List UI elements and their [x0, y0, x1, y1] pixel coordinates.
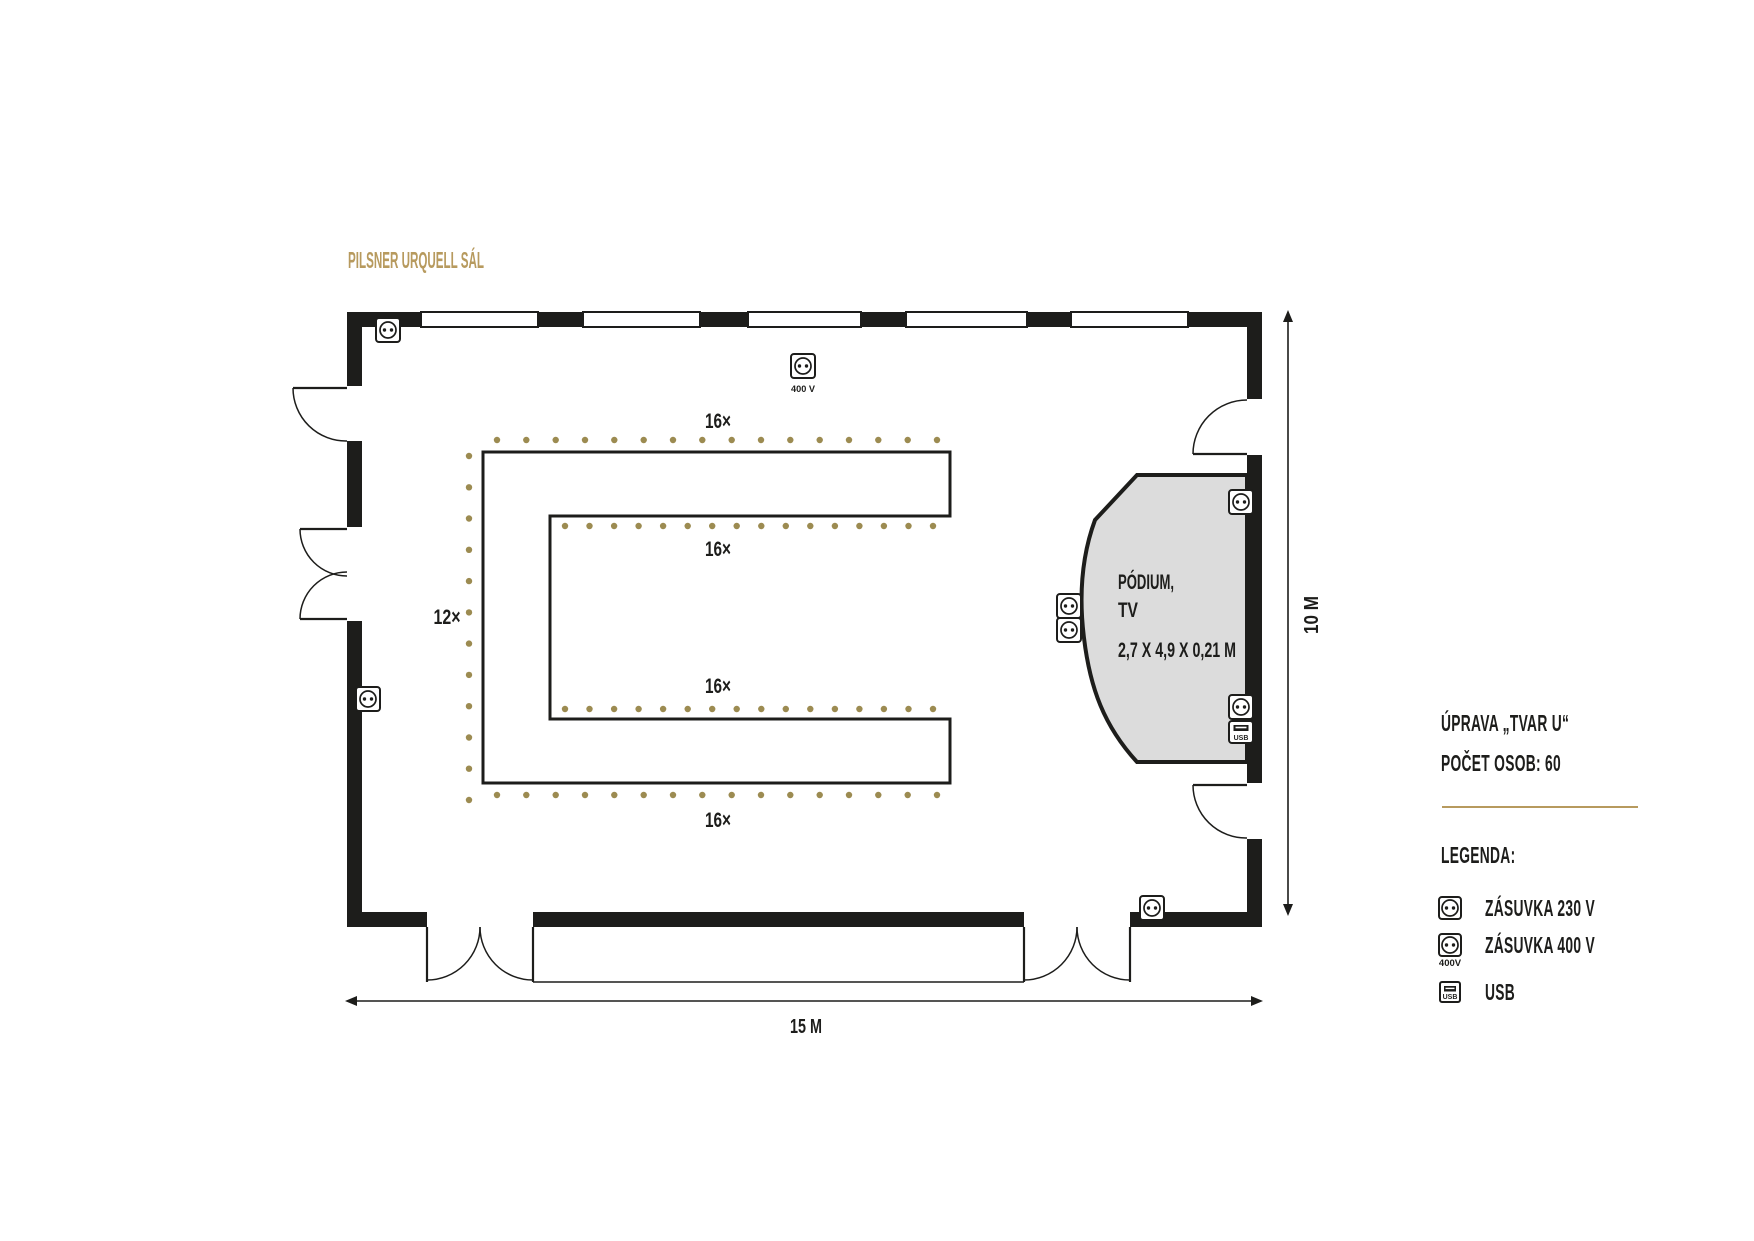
chair-dot-inner-bottom [807, 706, 813, 712]
chair-dot-outer-left [466, 734, 472, 740]
legend-label-230v: ZÁSUVKA 230 V [1485, 895, 1595, 921]
socket-400v-caption: 400 V [791, 384, 816, 395]
chair-dot-inner-top [832, 523, 838, 529]
socket-400v-icon: 400 V [791, 354, 816, 395]
socket-230v-icon [1057, 594, 1081, 618]
chair-dot-outer-left [466, 797, 472, 803]
chair-dot-outer-top [787, 437, 793, 443]
chair-dot-outer-top [905, 437, 911, 443]
legend-heading-text: LEGENDA: [1441, 842, 1515, 869]
chair-dot-inner-bottom [783, 706, 789, 712]
chair-dot-inner-bottom [734, 706, 740, 712]
chair-dot-inner-top [930, 523, 936, 529]
chair-dot-inner-bottom [660, 706, 666, 712]
seat-count-left: 12× [434, 606, 461, 629]
podium-size-label: 2,7 X 4,9 X 0,21 M [1118, 639, 1236, 662]
legend-item-usb: USB USB [1437, 979, 1535, 1009]
dimension-height: 10 M [1283, 310, 1323, 916]
chair-dot-inner-top [856, 523, 862, 529]
chair-dot-inner-top [586, 523, 592, 529]
door-bottom-left-double [427, 911, 533, 982]
chair-dot-inner-top [905, 523, 911, 529]
seat-count-inner-top: 16× [705, 538, 731, 561]
legend-icon-caption-400v: 400V [1439, 958, 1462, 969]
chair-dot-inner-bottom [562, 706, 568, 712]
seat-count-inner-bottom: 16× [705, 675, 731, 698]
chair-dot-outer-top [553, 437, 559, 443]
chair-dot-inner-bottom [635, 706, 641, 712]
chair-dot-outer-top [611, 437, 617, 443]
dimension-width-label: 15 M [790, 1016, 822, 1038]
chair-dot-outer-left [466, 703, 472, 709]
chair-dot-outer-bottom [670, 792, 676, 798]
chair-dot-inner-bottom [905, 706, 911, 712]
floorplan-page: PILSNER URQUELL SÁL [0, 0, 1754, 1241]
legend-heading: LEGENDA: [1441, 842, 1565, 869]
chair-dot-outer-left [466, 609, 472, 615]
chair-dot-outer-bottom [846, 792, 852, 798]
door-right-upper [1193, 399, 1263, 455]
chair-dot-outer-bottom [699, 792, 705, 798]
chair-dot-outer-left [466, 453, 472, 459]
chair-dot-outer-top [641, 437, 647, 443]
socket-230v-icon [356, 687, 380, 711]
door-bottom-right-double [1024, 911, 1130, 982]
capacity-text: POČET OSOB: 60 [1441, 750, 1561, 777]
chair-dot-inner-top [881, 523, 887, 529]
socket-230v-icon [1140, 896, 1164, 920]
chair-dot-outer-left [466, 547, 472, 553]
gold-divider [1442, 806, 1638, 808]
chair-dot-inner-bottom [758, 706, 764, 712]
chair-dot-outer-top [817, 437, 823, 443]
usb-icon: USB [1229, 721, 1253, 743]
podium: PÓDIUM, TV 2,7 X 4,9 X 0,21 M [1082, 475, 1247, 762]
chair-dot-inner-bottom [930, 706, 936, 712]
windows [421, 312, 1188, 327]
chair-dot-inner-top [807, 523, 813, 529]
podium-shape [1082, 475, 1247, 762]
chair-dot-inner-bottom [586, 706, 592, 712]
floorplan-drawing: PILSNER URQUELL SÁL [0, 0, 1754, 1241]
chair-dot-outer-bottom [905, 792, 911, 798]
chair-dot-inner-top [709, 523, 715, 529]
window [583, 312, 700, 327]
chair-dot-outer-bottom [817, 792, 823, 798]
chair-dot-outer-top [699, 437, 705, 443]
chair-dot-inner-bottom [611, 706, 617, 712]
chair-dot-inner-bottom [709, 706, 715, 712]
chair-dot-outer-bottom [758, 792, 764, 798]
u-table [483, 452, 950, 783]
chair-dot-inner-top [734, 523, 740, 529]
chair-dot-outer-bottom [934, 792, 940, 798]
socket-230v-icon [1057, 618, 1081, 642]
usb-icon-text: USB [1234, 735, 1249, 742]
chair-dot-outer-bottom [553, 792, 559, 798]
chair-dot-inner-top [660, 523, 666, 529]
chair-dot-inner-bottom [856, 706, 862, 712]
chair-dot-inner-top [685, 523, 691, 529]
legend-item-socket-400v: 400V ZÁSUVKA 400 V [1437, 932, 1668, 962]
chair-dot-outer-top [523, 437, 529, 443]
chair-dot-inner-bottom [832, 706, 838, 712]
seat-count-bottom: 16× [705, 809, 731, 832]
chair-dot-outer-left [466, 640, 472, 646]
capacity-label: POČET OSOB: 60 [1441, 750, 1641, 777]
door-left-upper [293, 386, 363, 441]
chair-dot-outer-left [466, 578, 472, 584]
door-right-lower [1193, 783, 1263, 839]
chair-dot-outer-top [582, 437, 588, 443]
chair-dot-outer-left [466, 672, 472, 678]
window [1071, 312, 1188, 327]
window [421, 312, 538, 327]
chair-dot-outer-top [729, 437, 735, 443]
podium-label-line2: TV [1118, 599, 1138, 622]
chair-dot-outer-bottom [641, 792, 647, 798]
window [748, 312, 861, 327]
chair-dot-inner-top [758, 523, 764, 529]
chair-dot-inner-bottom [685, 706, 691, 712]
chair-dot-outer-left [466, 484, 472, 490]
chair-dot-outer-top [875, 437, 881, 443]
socket-230v-icon [376, 318, 400, 342]
chair-dot-outer-top [494, 437, 500, 443]
page-title: PILSNER URQUELL SÁL [348, 246, 484, 273]
chair-dot-outer-top [670, 437, 676, 443]
door-left-double [300, 527, 363, 621]
seat-count-top: 16× [705, 410, 731, 433]
chair-dot-outer-bottom [494, 792, 500, 798]
chair-dot-inner-top [611, 523, 617, 529]
chair-dot-outer-bottom [729, 792, 735, 798]
legend-label-400v: ZÁSUVKA 400 V [1485, 932, 1595, 958]
chair-dot-inner-top [635, 523, 641, 529]
legend-item-socket-230v: ZÁSUVKA 230 V [1437, 895, 1668, 925]
chair-dot-outer-bottom [787, 792, 793, 798]
socket-230v-icon [1229, 695, 1253, 719]
dimension-height-label: 10 M [1301, 596, 1323, 634]
arrangement-text: ÚPRAVA „TVAR U“ [1441, 710, 1569, 737]
chair-dot-outer-bottom [582, 792, 588, 798]
chair-dot-inner-top [783, 523, 789, 529]
chair-dot-outer-bottom [523, 792, 529, 798]
chair-dot-outer-bottom [611, 792, 617, 798]
chair-dot-outer-top [846, 437, 852, 443]
chair-dot-outer-top [934, 437, 940, 443]
chair-dot-inner-bottom [881, 706, 887, 712]
chair-dot-inner-top [562, 523, 568, 529]
chair-dot-outer-left [466, 766, 472, 772]
chair-dot-outer-top [758, 437, 764, 443]
arrangement-label: ÚPRAVA „TVAR U“ [1441, 710, 1655, 737]
chair-dot-outer-left [466, 515, 472, 521]
legend-label-usb: USB [1485, 979, 1515, 1005]
socket-230v-icon [1229, 490, 1253, 514]
chair-dot-outer-bottom [875, 792, 881, 798]
window [906, 312, 1027, 327]
podium-label-line1: PÓDIUM, [1118, 570, 1174, 594]
legend-icon-text-usb: USB [1443, 994, 1458, 1001]
dimension-width: 15 M [345, 996, 1263, 1038]
